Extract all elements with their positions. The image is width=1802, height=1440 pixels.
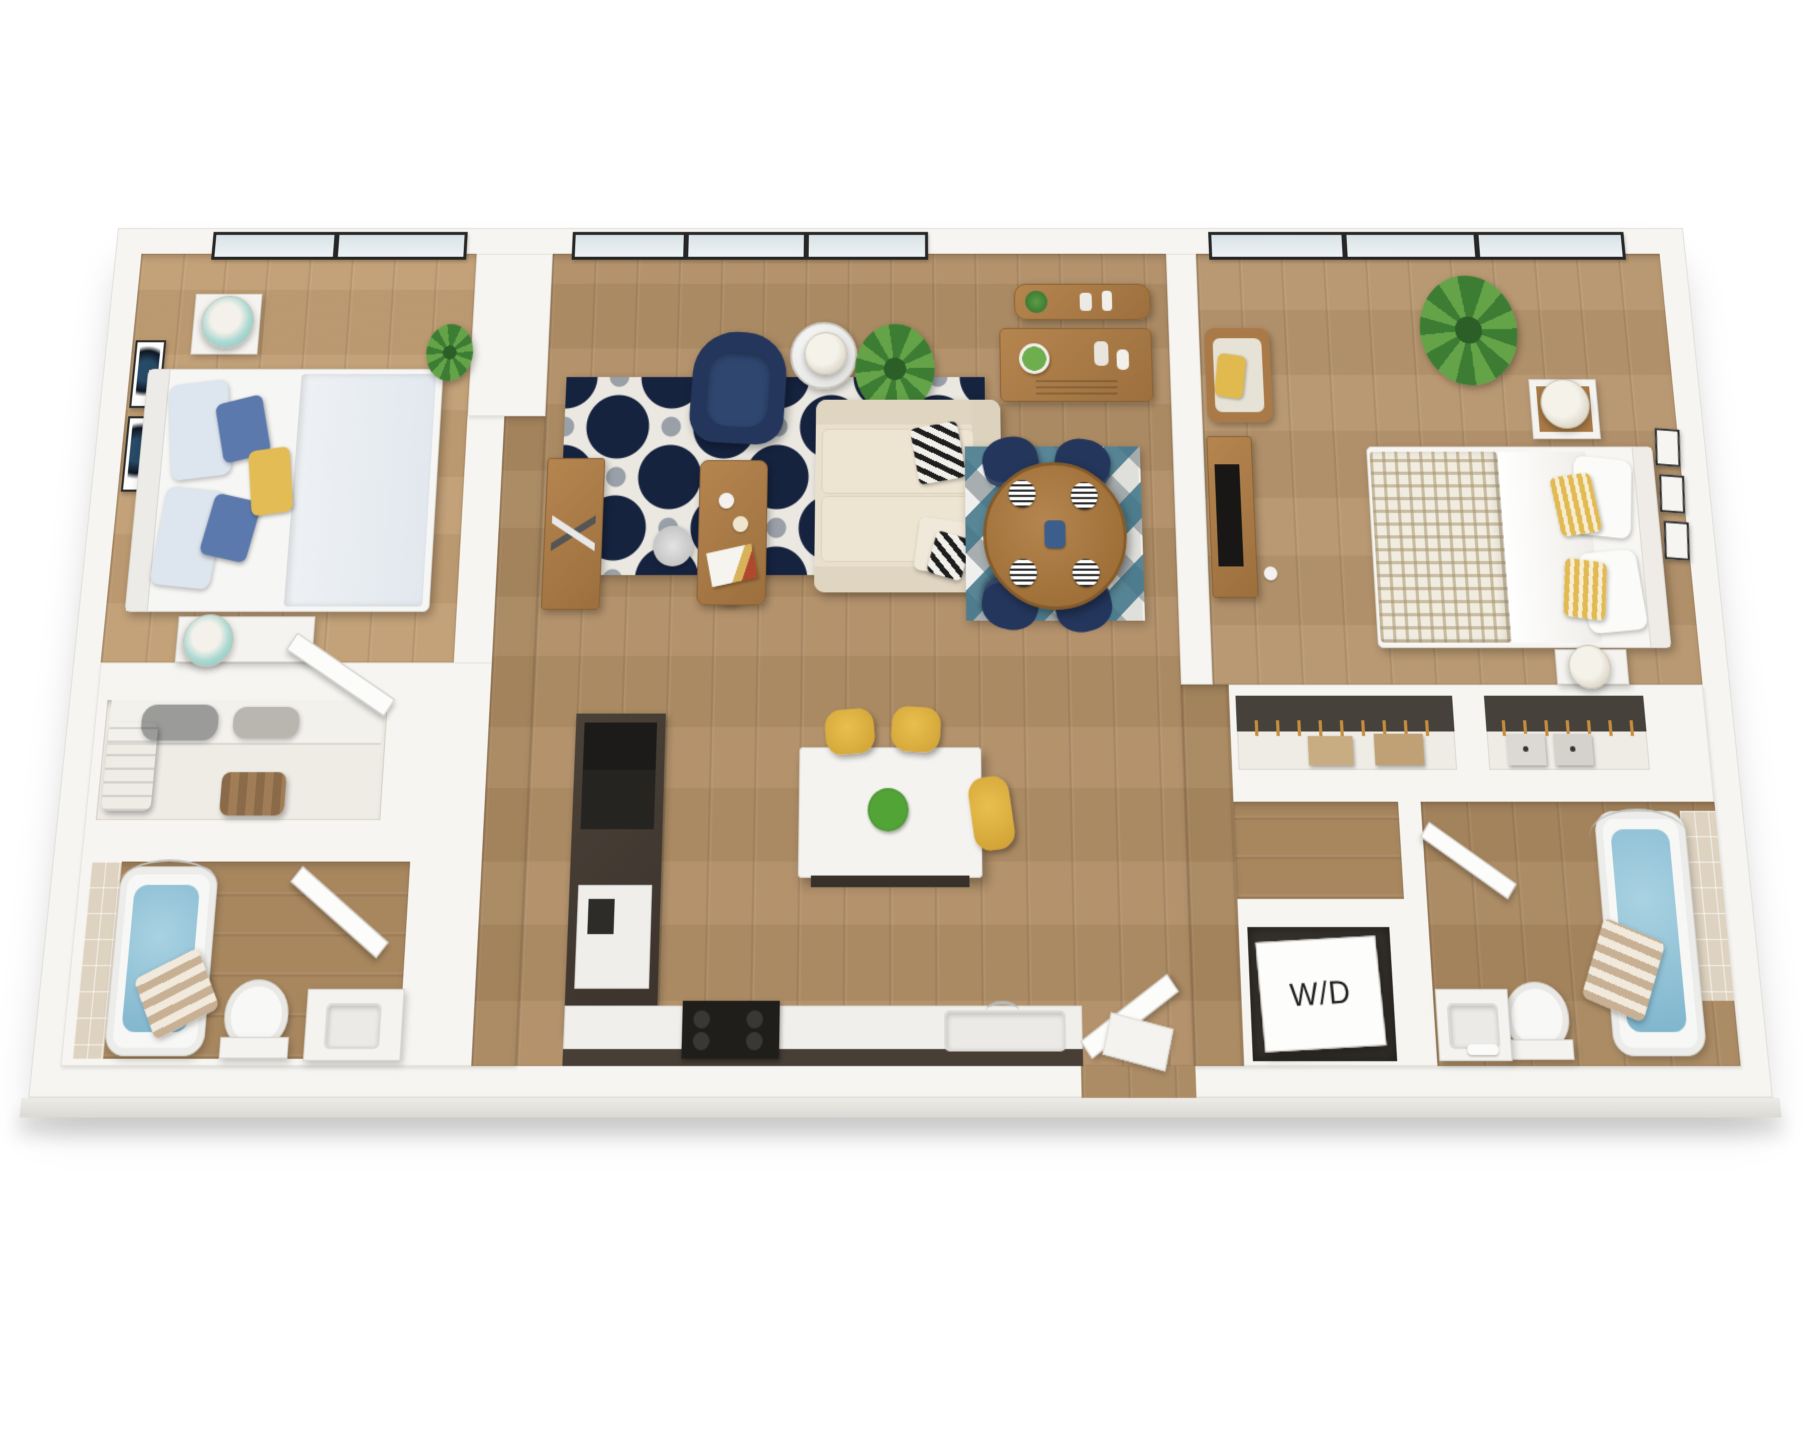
- island-plant: [868, 788, 909, 832]
- window-bedroom2: [1208, 232, 1626, 260]
- flower-pot: [1019, 343, 1050, 374]
- hallway-right-horizontal: [1233, 802, 1404, 899]
- accent-chair: [1204, 328, 1273, 422]
- laundry-closet-recess: W/D: [1247, 927, 1397, 1061]
- cup: [733, 516, 749, 532]
- storage-box: [1308, 736, 1354, 765]
- cup: [718, 493, 734, 509]
- kitchen-cabinet-face: [562, 1049, 1083, 1066]
- window-mullion: [333, 235, 340, 257]
- kitchen-tall-cabinets: [564, 714, 666, 1035]
- storage-bin: [1553, 734, 1594, 766]
- burner: [693, 1010, 710, 1028]
- model-base: [19, 1098, 1781, 1118]
- shelf-plant: [1025, 291, 1048, 313]
- armchair-cushion: [705, 351, 772, 428]
- bed-queen-1: [125, 369, 444, 612]
- window-living: [572, 232, 928, 260]
- duvet: [284, 374, 437, 607]
- place-setting: [1010, 559, 1038, 587]
- closet-a: [1235, 696, 1457, 770]
- window-mullion: [683, 235, 689, 257]
- sideboard: [999, 328, 1153, 402]
- burner: [746, 1032, 763, 1050]
- drum-lamp: [804, 332, 847, 375]
- entry-threshold: [1081, 1066, 1197, 1098]
- tv-screen: [1214, 464, 1243, 566]
- bar-stool: [890, 705, 942, 753]
- apartment-floorplan: W/D: [28, 228, 1773, 1098]
- window-bedroom1: [211, 232, 468, 260]
- vase: [1102, 291, 1113, 311]
- pillow-yellow-striped: [1563, 558, 1607, 621]
- place-setting: [1008, 480, 1035, 508]
- sink-1: [324, 1003, 382, 1049]
- paper-roll: [1467, 1044, 1499, 1055]
- storage-basket: [219, 772, 287, 815]
- window-mullion: [1474, 235, 1481, 257]
- wall-art-frame: [1659, 474, 1685, 514]
- faucet: [986, 1001, 1019, 1021]
- window-mullion: [1341, 235, 1347, 257]
- tv-console-bedroom2: [1206, 436, 1259, 598]
- washer-dryer-label: W/D: [1288, 973, 1352, 1014]
- sideboard-drawers: [1036, 378, 1118, 394]
- vase: [1116, 349, 1129, 369]
- island-base: [811, 876, 970, 888]
- duvet-patterned: [1369, 452, 1511, 643]
- burner: [746, 1010, 763, 1028]
- storage-bin: [1506, 734, 1547, 766]
- window-mullion: [804, 235, 809, 257]
- kitchen-island: [798, 747, 983, 878]
- centerpiece: [1044, 520, 1065, 548]
- place-setting: [1072, 559, 1100, 587]
- coffee-table: [696, 460, 768, 605]
- console-x-detail: [550, 491, 597, 577]
- suitcase: [101, 723, 159, 811]
- place-setting: [1071, 482, 1099, 510]
- pillow-yellow-accent: [248, 446, 293, 517]
- storage-box: [1374, 734, 1425, 766]
- closet-b: [1484, 696, 1650, 770]
- burner: [693, 1032, 710, 1050]
- toilet-tank: [1507, 1039, 1575, 1060]
- refrigerator: [580, 723, 657, 830]
- coffee-maker: [587, 899, 614, 934]
- armchair-navy: [687, 330, 789, 446]
- bar-stool: [824, 707, 876, 756]
- wall-art-frame: [1655, 428, 1681, 467]
- sink-2: [1447, 1003, 1501, 1049]
- pillow-yellow-accent: [1214, 353, 1247, 400]
- washer-dryer-unit: W/D: [1255, 936, 1386, 1053]
- toilet-tank: [219, 1037, 289, 1059]
- vase: [1080, 293, 1093, 311]
- media-console: [541, 458, 606, 610]
- mug-on-floor: [1264, 566, 1278, 580]
- floating-shelf: [1014, 284, 1151, 320]
- bed-queen-2: [1366, 446, 1671, 648]
- pillow-striped: [910, 421, 967, 485]
- range-cooktop: [681, 1001, 779, 1059]
- wall-art-frame: [1664, 521, 1690, 561]
- sofa-armrest: [816, 400, 972, 425]
- magazine: [706, 544, 757, 588]
- wall-bedroom1-right: [468, 254, 553, 417]
- vase: [1094, 341, 1109, 365]
- hanging-clothes: [232, 707, 301, 738]
